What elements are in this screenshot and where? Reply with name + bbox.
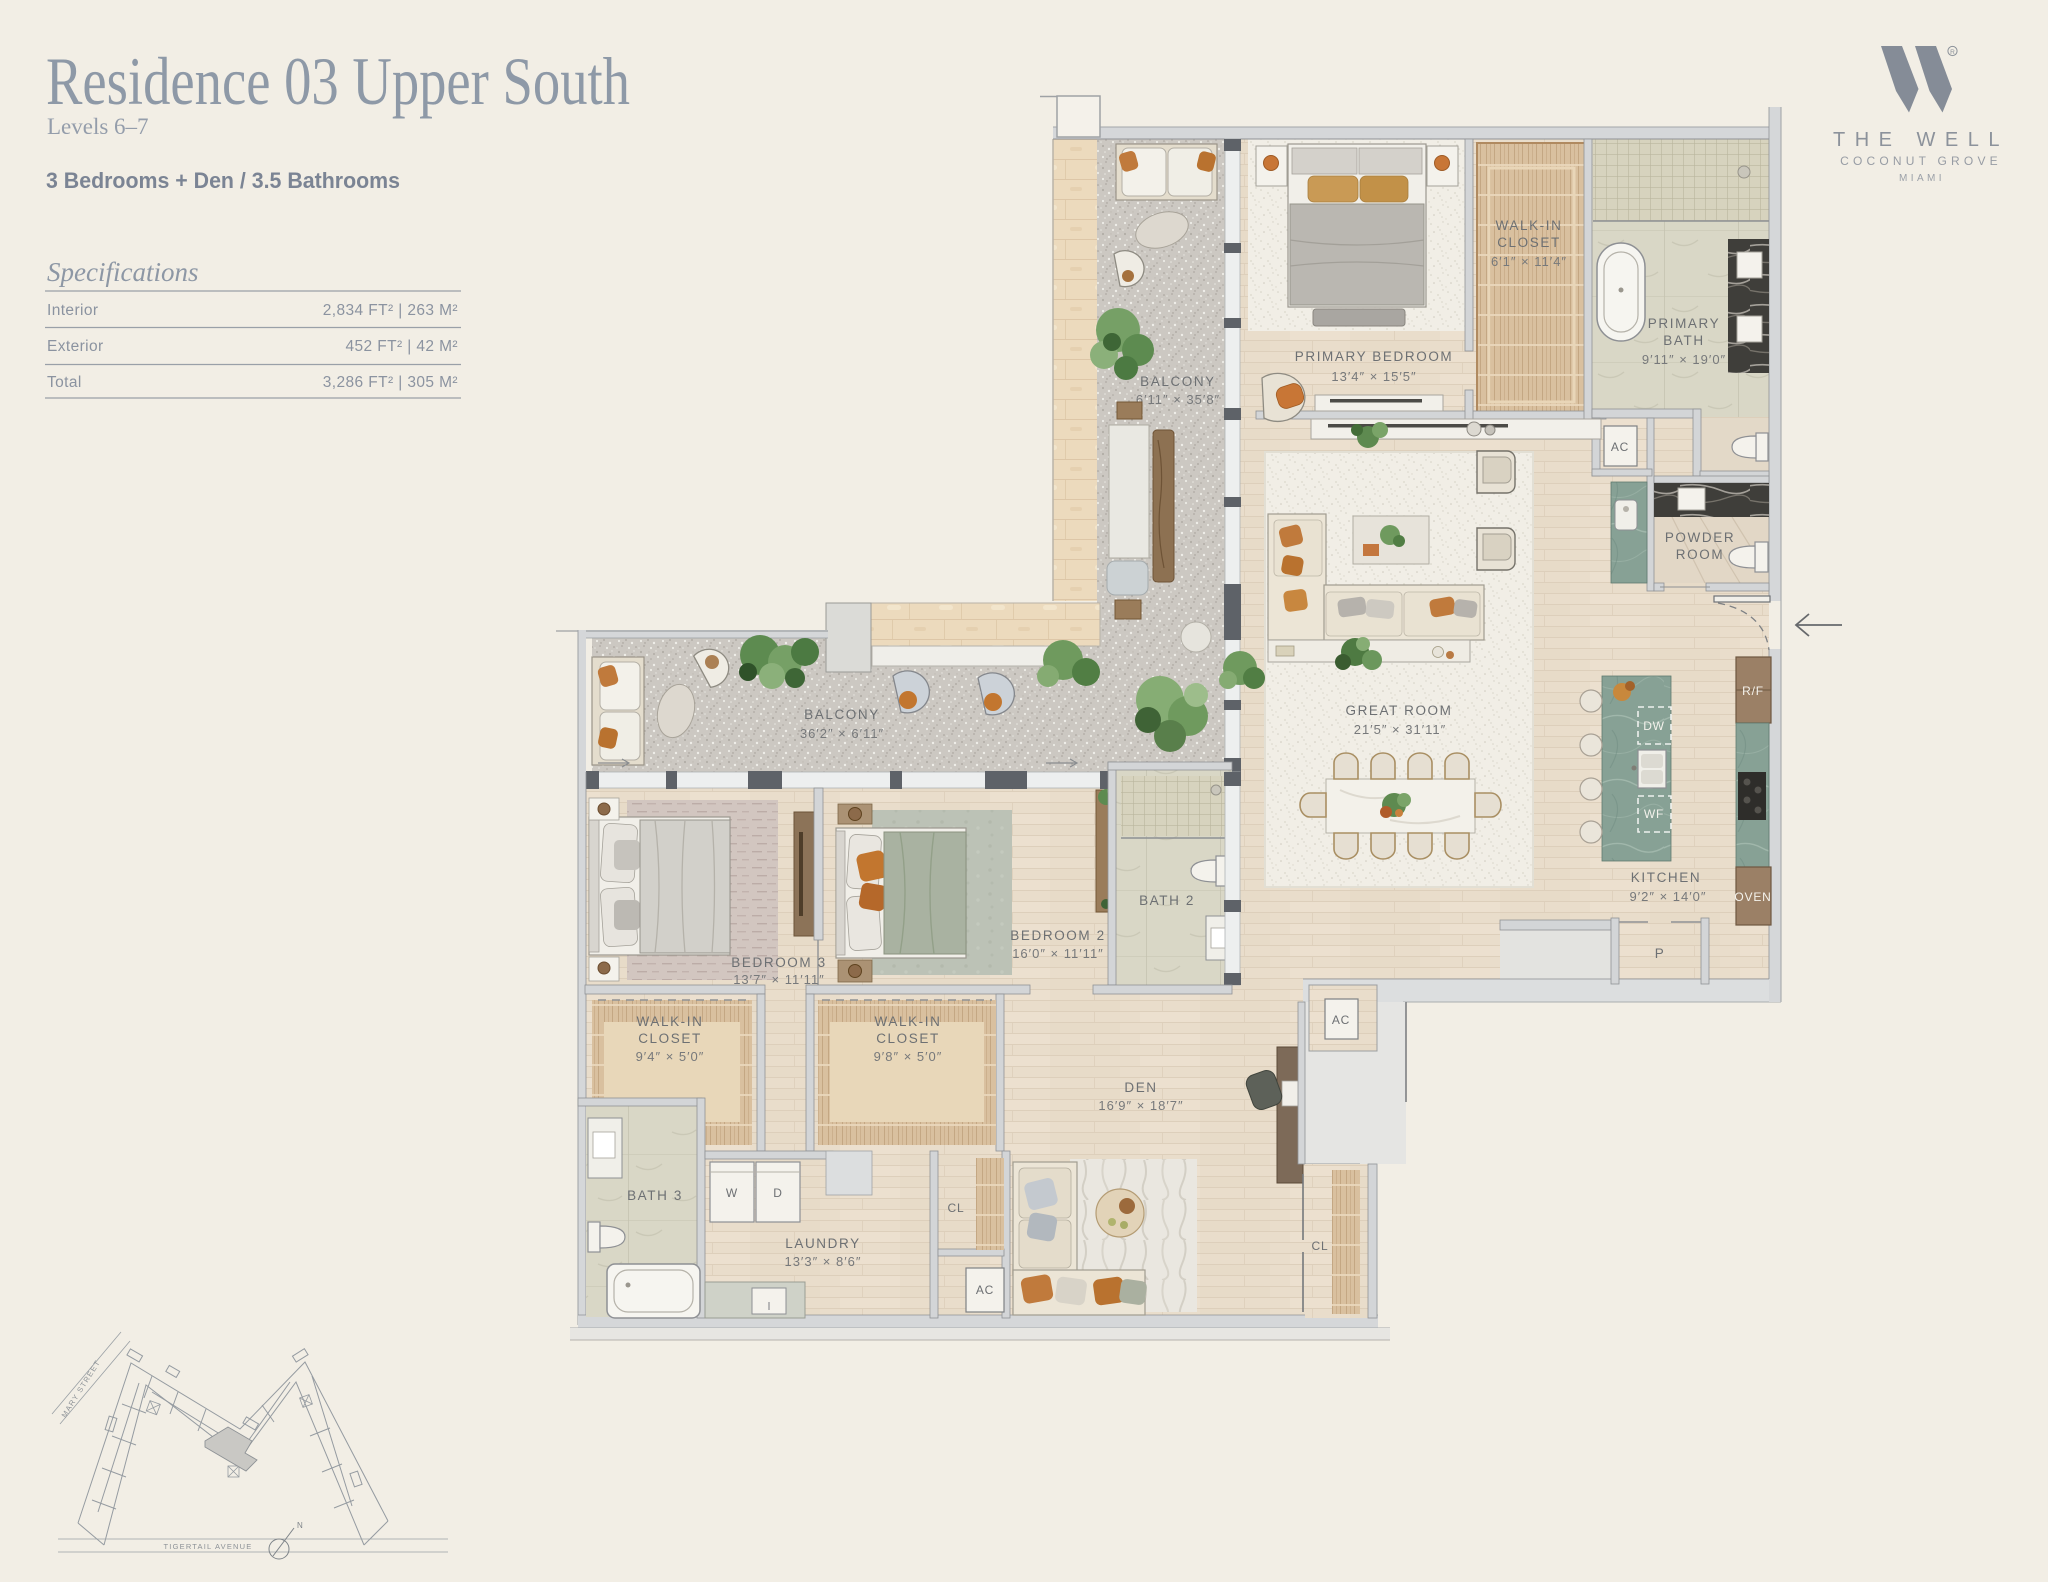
- svg-text:CLOSET: CLOSET: [876, 1031, 940, 1046]
- svg-text:R/F: R/F: [1742, 684, 1764, 698]
- svg-text:DW: DW: [1643, 719, 1665, 733]
- svg-text:452 FT² | 42 M²: 452 FT² | 42 M²: [345, 338, 458, 355]
- svg-text:3 Bedrooms + Den / 3.5 Bathroo: 3 Bedrooms + Den / 3.5 Bathrooms: [46, 168, 400, 193]
- svg-text:CL: CL: [948, 1201, 965, 1215]
- svg-text:9′11″ × 19′0″: 9′11″ × 19′0″: [1642, 352, 1726, 367]
- svg-text:Total: Total: [47, 374, 82, 391]
- svg-text:MIAMI: MIAMI: [1899, 173, 1945, 184]
- svg-text:PRIMARY: PRIMARY: [1648, 316, 1720, 331]
- svg-text:BEDROOM 2: BEDROOM 2: [1010, 928, 1105, 943]
- svg-text:3,286 FT² | 305 M²: 3,286 FT² | 305 M²: [323, 374, 458, 391]
- svg-text:CL: CL: [1312, 1239, 1329, 1253]
- svg-text:Levels 6–7: Levels 6–7: [47, 114, 149, 139]
- svg-text:GREAT ROOM: GREAT ROOM: [1345, 703, 1452, 718]
- svg-text:WALK-IN: WALK-IN: [1496, 218, 1563, 233]
- svg-text:P: P: [1655, 946, 1666, 961]
- svg-text:2,834 FT² | 263 M²: 2,834 FT² | 263 M²: [323, 302, 458, 319]
- svg-text:BATH 3: BATH 3: [627, 1188, 683, 1203]
- svg-text:N: N: [297, 1521, 303, 1530]
- svg-text:6′11″ × 35′8″: 6′11″ × 35′8″: [1136, 392, 1220, 407]
- svg-text:D: D: [773, 1186, 782, 1200]
- svg-text:AC: AC: [1332, 1013, 1350, 1027]
- svg-text:9′8″ × 5′0″: 9′8″ × 5′0″: [874, 1049, 943, 1064]
- svg-text:BALCONY: BALCONY: [1140, 374, 1216, 389]
- svg-text:Specifications: Specifications: [47, 257, 198, 287]
- svg-text:BEDROOM 3: BEDROOM 3: [731, 955, 826, 970]
- svg-text:ROOM: ROOM: [1676, 547, 1724, 562]
- svg-text:KITCHEN: KITCHEN: [1631, 870, 1701, 885]
- svg-text:DEN: DEN: [1124, 1080, 1157, 1095]
- svg-text:16′0″ × 11′11″: 16′0″ × 11′11″: [1012, 946, 1104, 961]
- svg-text:13′3″ × 8′6″: 13′3″ × 8′6″: [784, 1254, 861, 1269]
- svg-text:WALK-IN: WALK-IN: [875, 1014, 942, 1029]
- svg-text:CLOSET: CLOSET: [638, 1031, 702, 1046]
- svg-text:WF: WF: [1644, 807, 1664, 821]
- svg-text:OVEN: OVEN: [1734, 890, 1771, 904]
- svg-text:LAUNDRY: LAUNDRY: [785, 1236, 860, 1251]
- svg-text:PRIMARY BEDROOM: PRIMARY BEDROOM: [1295, 349, 1454, 364]
- svg-text:AC: AC: [1611, 440, 1629, 454]
- svg-text:16′9″ × 18′7″: 16′9″ × 18′7″: [1098, 1098, 1183, 1113]
- svg-text:WALK-IN: WALK-IN: [637, 1014, 704, 1029]
- svg-text:21′5″ × 31′11″: 21′5″ × 31′11″: [1354, 722, 1447, 737]
- svg-text:AC: AC: [976, 1283, 994, 1297]
- svg-text:BATH 2: BATH 2: [1139, 893, 1195, 908]
- svg-text:BATH: BATH: [1663, 333, 1704, 348]
- svg-text:36′2″ × 6′11″: 36′2″ × 6′11″: [800, 726, 884, 741]
- svg-text:R: R: [1950, 49, 1955, 56]
- svg-text:Exterior: Exterior: [47, 338, 104, 355]
- svg-text:POWDER: POWDER: [1665, 530, 1735, 545]
- svg-text:Residence 03 Upper South: Residence 03 Upper South: [46, 43, 630, 119]
- svg-text:9′2″ × 14′0″: 9′2″ × 14′0″: [1629, 889, 1706, 904]
- svg-text:Interior: Interior: [47, 302, 98, 319]
- svg-text:CLOSET: CLOSET: [1497, 235, 1561, 250]
- svg-text:9′4″ × 5′0″: 9′4″ × 5′0″: [636, 1049, 705, 1064]
- svg-text:BALCONY: BALCONY: [804, 707, 880, 722]
- svg-text:COCONUT GROVE: COCONUT GROVE: [1840, 154, 2002, 168]
- svg-text:THE WELL: THE WELL: [1833, 129, 2009, 151]
- svg-text:W: W: [726, 1186, 738, 1200]
- svg-text:TIGERTAIL AVENUE: TIGERTAIL AVENUE: [164, 1542, 253, 1551]
- svg-text:6′1″ × 11′4″: 6′1″ × 11′4″: [1491, 254, 1567, 269]
- svg-text:13′4″ × 15′5″: 13′4″ × 15′5″: [1331, 369, 1416, 384]
